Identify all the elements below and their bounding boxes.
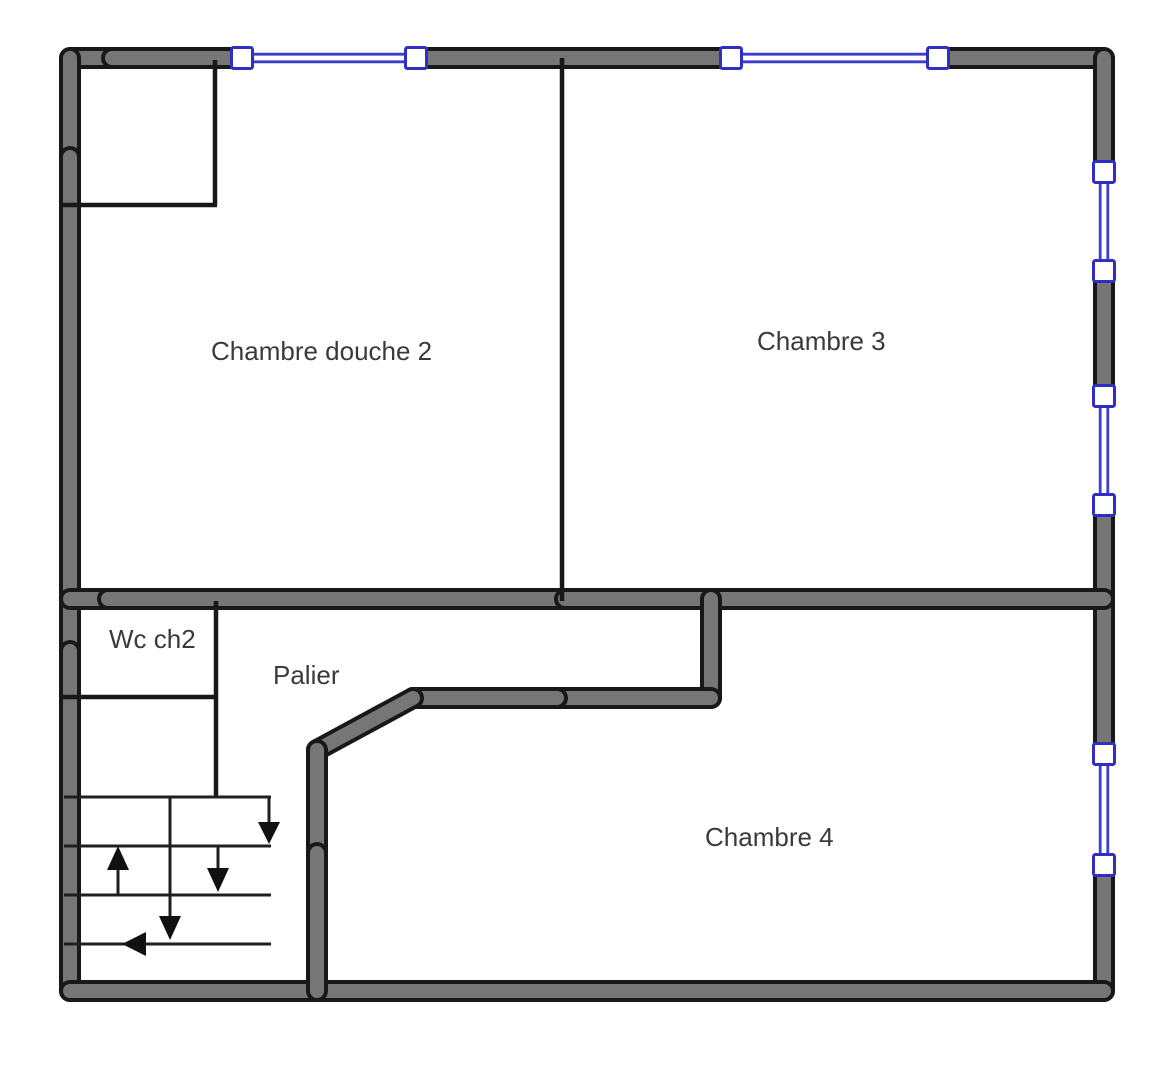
stair-arrow-left-icon bbox=[122, 932, 146, 956]
wall-palier-chambre4 bbox=[317, 599, 711, 991]
room-label-chambre-3: Chambre 3 bbox=[757, 328, 886, 354]
windows bbox=[231, 48, 1115, 876]
window-top-left bbox=[231, 48, 427, 69]
window-right-middle bbox=[1094, 386, 1115, 516]
floor-plan-drawing bbox=[0, 0, 1164, 1080]
stair-arrow-down-icon bbox=[159, 916, 181, 940]
stairs bbox=[64, 797, 280, 956]
room-label-palier: Palier bbox=[273, 662, 339, 688]
floor-plan: Chambre douche 2 Chambre 3 Wc ch2 Palier… bbox=[0, 0, 1164, 1080]
room-label-chambre-douche-2: Chambre douche 2 bbox=[211, 338, 432, 364]
exterior-walls bbox=[70, 58, 1104, 991]
window-top-right bbox=[721, 48, 950, 69]
room-label-chambre-4: Chambre 4 bbox=[705, 824, 834, 850]
window-right-lower bbox=[1094, 744, 1115, 876]
stair-arrow-up-icon bbox=[107, 846, 129, 870]
interior-walls bbox=[70, 599, 1104, 991]
room-label-wc-ch2: Wc ch2 bbox=[109, 626, 196, 652]
stair-arrow-down-icon bbox=[207, 868, 229, 892]
stair-arrow-down-icon bbox=[258, 822, 280, 844]
window-right-upper bbox=[1094, 162, 1115, 282]
